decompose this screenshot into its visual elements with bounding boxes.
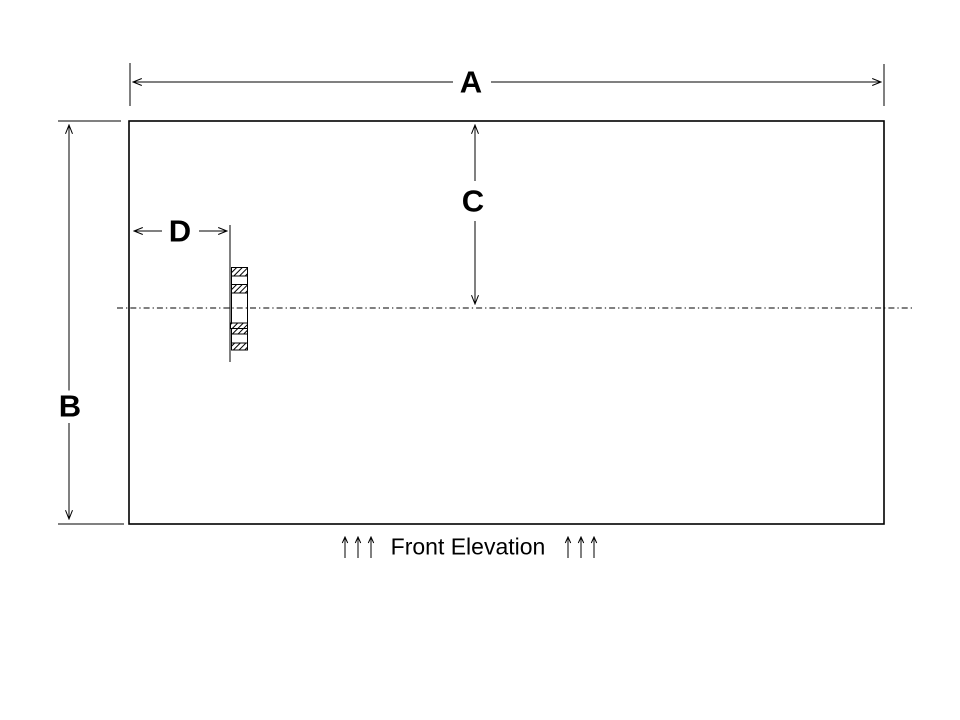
caption-arrows-left	[345, 537, 371, 558]
dim-label-d: D	[165, 216, 195, 247]
flange-web-cell	[232, 334, 248, 343]
dim-label-b: B	[55, 391, 85, 422]
flange-hatch-cell	[232, 268, 248, 277]
flange-web-cell	[232, 276, 248, 285]
drawing-canvas: A B C D Front Elevation	[0, 0, 960, 720]
extension-lines	[58, 63, 884, 524]
flange-hatch-cell	[232, 285, 248, 294]
dim-label-c: C	[458, 186, 488, 217]
view-caption: Front Elevation	[391, 536, 546, 559]
flange-hatch-cell	[232, 343, 248, 350]
flange-hatch-cell	[232, 329, 248, 335]
dim-label-a: A	[456, 67, 486, 98]
front-elevation-drawing	[0, 0, 960, 720]
flange-hatch-cell	[231, 323, 248, 329]
caption-arrows-right	[568, 537, 594, 558]
dimension-lines	[69, 82, 881, 519]
flange-section	[231, 268, 248, 351]
